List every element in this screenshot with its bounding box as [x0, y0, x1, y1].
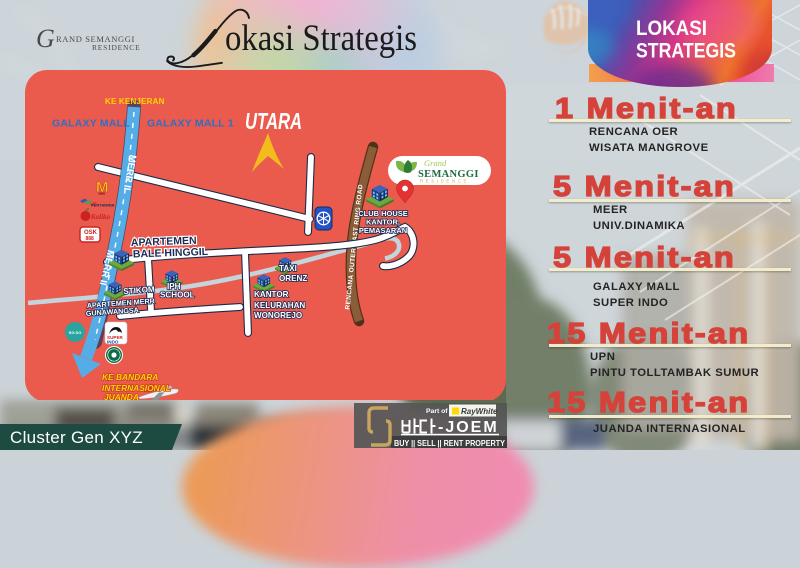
svg-text:RESIDENCE: RESIDENCE — [420, 179, 469, 184]
svg-text:SG.SO: SG.SO — [69, 330, 82, 335]
svg-text:TAXI: TAXI — [279, 264, 297, 273]
svg-text:okasi Strategis: okasi Strategis — [225, 17, 417, 58]
svg-text:Kalika: Kalika — [90, 213, 111, 221]
svg-text:BUY || SELL || RENT PROPERTY: BUY || SELL || RENT PROPERTY — [394, 438, 505, 448]
svg-text:KE BANDARA: KE BANDARA — [102, 372, 158, 382]
svg-text:PEMASARAN: PEMASARAN — [359, 226, 407, 235]
svg-text:LOKASI: LOKASI — [636, 16, 707, 40]
svg-text:WONOREJO: WONOREJO — [254, 311, 302, 320]
svg-text:UTARA: UTARA — [245, 108, 302, 134]
svg-text:ORENZ: ORENZ — [279, 274, 307, 283]
svg-text:KELURAHAN: KELURAHAN — [254, 301, 305, 310]
svg-text:SCHOOL: SCHOOL — [160, 291, 195, 300]
svg-text:Grand: Grand — [424, 158, 447, 168]
svg-text:Part of: Part of — [426, 408, 448, 415]
svg-text:INDO: INDO — [107, 340, 119, 345]
svg-text:888: 888 — [86, 236, 95, 242]
svg-text:JUANDA: JUANDA — [104, 392, 139, 400]
svg-text:PERTAMINA: PERTAMINA — [91, 203, 115, 208]
svg-text:STRATEGIS: STRATEGIS — [636, 39, 736, 63]
svg-text:GALAXY MALL 1: GALAXY MALL 1 — [147, 118, 234, 130]
svg-text:-JOEM: -JOEM — [438, 419, 499, 436]
svg-text:KE KENJERAN: KE KENJERAN — [105, 97, 165, 106]
svg-text:GALAXY MALL: GALAXY MALL — [52, 118, 130, 130]
svg-text:RayWhite: RayWhite — [461, 407, 498, 416]
svg-text:KANTOR: KANTOR — [254, 290, 289, 299]
